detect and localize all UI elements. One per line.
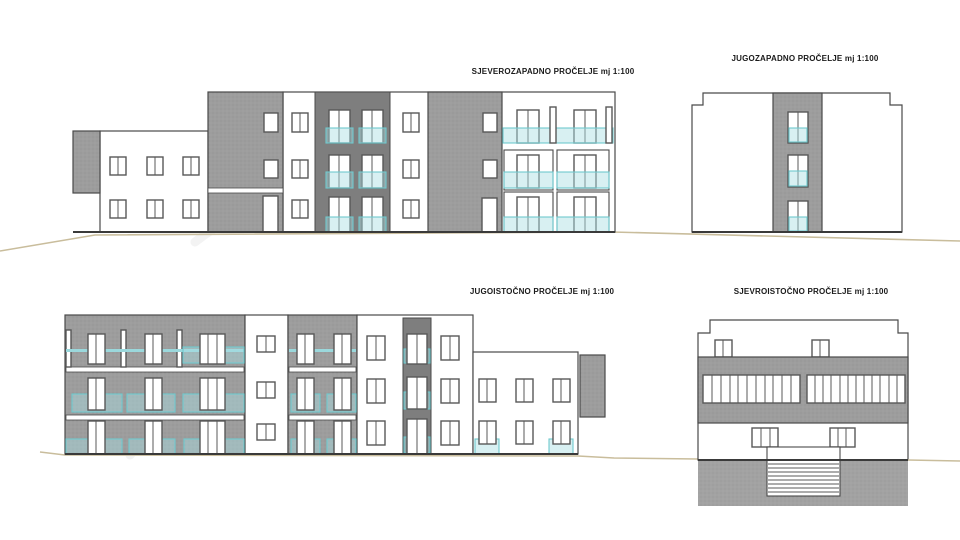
entrance-door	[263, 196, 278, 232]
terrain-line-right	[908, 460, 960, 461]
terrain-line	[0, 232, 960, 251]
elevation-title-southwest: JUGOZAPADNO PROČELJE mj 1:100	[700, 54, 910, 63]
elevation-southwest-drawing	[692, 93, 902, 232]
entrance-staircase	[767, 447, 840, 496]
elevation-southeast-drawing	[40, 315, 698, 459]
elevation-sheet: SJEVEROZAPADNO PROČELJE mj 1:100 JUGOZAP…	[0, 0, 960, 540]
elevation-title-southeast: JUGOISTOČNO PROČELJE mj 1:100	[437, 287, 647, 296]
elevation-title-northeast: SJEVROISTOČNO PROČELJE mj 1:100	[706, 287, 916, 296]
elevation-northeast-drawing	[698, 320, 960, 506]
side-door	[482, 198, 497, 232]
stair-windows	[788, 112, 808, 232]
elevation-title-northwest: SJEVEROZAPADNO PROČELJE mj 1:100	[438, 67, 668, 76]
elevation-drawings-svg	[0, 0, 960, 540]
